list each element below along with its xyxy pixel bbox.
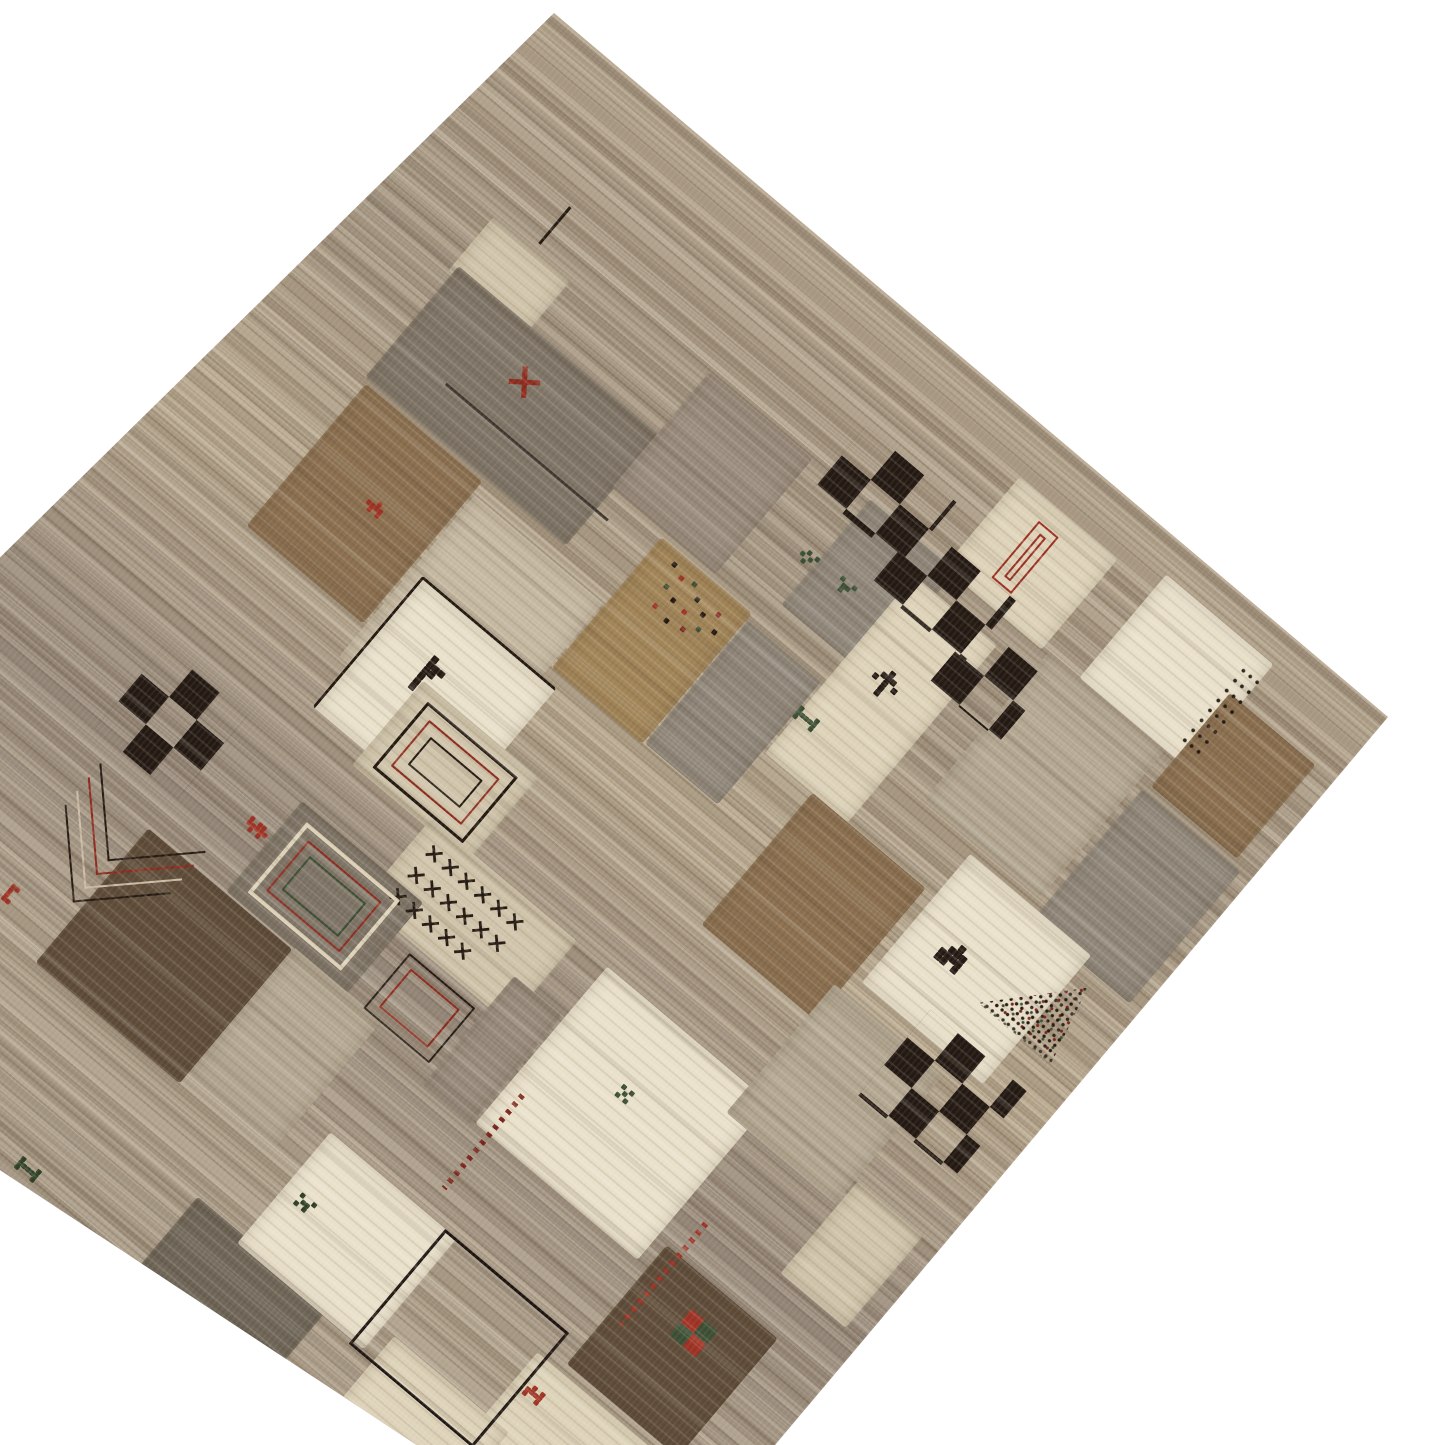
patch-pale-edge (781, 1181, 923, 1328)
photo-canvas: ××××××× ×××××× ××××× (0, 0, 1445, 1445)
rug-field: ××××××× ×××××× ××××× (0, 0, 1445, 1445)
sprig-green-1-px (800, 557, 807, 564)
bracket-red-px (14, 887, 21, 894)
sprig-green-1-px (807, 557, 814, 564)
bracket-red-px (4, 898, 11, 905)
chevron-nest-v (65, 797, 171, 903)
goat-red-px (261, 832, 268, 839)
line-black-short (538, 206, 571, 245)
patch-taupe-upper (612, 372, 812, 574)
rug-photo: ××××××× ×××××× ××××× (0, 0, 1445, 1445)
